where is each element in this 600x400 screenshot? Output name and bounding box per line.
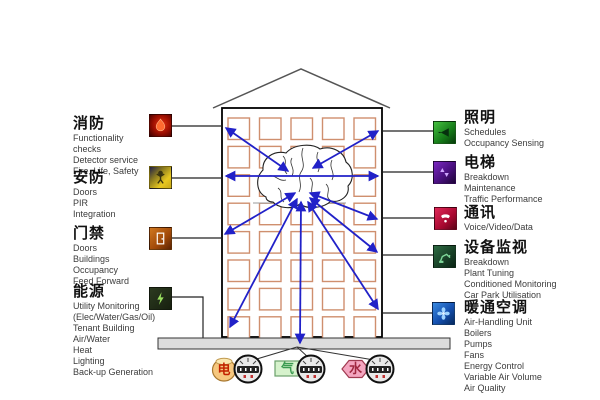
- building-window: [291, 317, 313, 339]
- system-equipment-monitoring-items: Breakdown Plant Tuning Conditioned Monit…: [464, 257, 557, 301]
- system-communication-title: 通讯: [464, 205, 533, 221]
- building-window: [323, 203, 345, 225]
- building-window: [354, 118, 376, 140]
- hvac-fan-icon: [432, 302, 455, 325]
- system-lighting-items: Schedules Occupancy Sensing: [464, 127, 544, 149]
- building-window: [228, 175, 250, 197]
- building-window: [260, 317, 282, 339]
- system-communication-items: Voice/Video/Data: [464, 222, 533, 233]
- building-window: [291, 118, 313, 140]
- system-energy: 能源 Utility Monitoring (Elec/Water/Gas/Oi…: [73, 284, 155, 378]
- energy-meter-icon: [149, 287, 172, 310]
- door-access-icon: [149, 227, 172, 250]
- system-energy-items: Utility Monitoring (Elec/Water/Gas/Oil) …: [73, 301, 155, 378]
- system-lighting: 照明 Schedules Occupancy Sensing: [464, 110, 544, 149]
- equipment-monitoring-icon: [433, 245, 456, 268]
- electricity-gauge-icon: [235, 356, 262, 383]
- building-window: [323, 232, 345, 254]
- water-meter-label: 水: [345, 361, 366, 377]
- building-window: [323, 288, 345, 310]
- building-window: [228, 317, 250, 339]
- building-window: [228, 146, 250, 168]
- system-security-items: Doors PIR Integration: [73, 187, 116, 220]
- communication-icon: [434, 207, 457, 230]
- building-window: [291, 260, 313, 282]
- system-access-title: 门禁: [73, 226, 129, 242]
- building-window: [354, 175, 376, 197]
- building-window: [354, 146, 376, 168]
- system-fire-title: 消防: [73, 116, 139, 132]
- building-window: [260, 118, 282, 140]
- gas-gauge-icon: [298, 356, 325, 383]
- building-window: [228, 260, 250, 282]
- building-window: [260, 288, 282, 310]
- building-window: [323, 260, 345, 282]
- water-gauge-icon: [367, 356, 394, 383]
- lighting-beam-icon: [433, 121, 456, 144]
- security-person-icon: [149, 166, 172, 189]
- system-access: 门禁 Doors Buildings Occupancy Feed Forwar…: [73, 226, 129, 287]
- ground-bar: [158, 338, 450, 349]
- building-window: [323, 118, 345, 140]
- system-communication: 通讯 Voice/Video/Data: [464, 205, 533, 233]
- system-equipment-monitoring: 设备监视 Breakdown Plant Tuning Conditioned …: [464, 240, 557, 301]
- system-hvac: 暖通空调 Air-Handling Unit Boilers Pumps Fan…: [464, 300, 542, 394]
- building-window: [354, 317, 376, 339]
- system-equipment-monitoring-title: 设备监视: [464, 240, 557, 256]
- system-elevator-items: Breakdown Maintenance Traffic Performanc…: [464, 172, 543, 205]
- system-security: 安防 Doors PIR Integration: [73, 170, 116, 220]
- building-window: [291, 232, 313, 254]
- building-window: [228, 288, 250, 310]
- fire-icon: [149, 114, 172, 137]
- building-management-diagram: 消防 Functionality checks Detector service…: [0, 0, 600, 400]
- system-elevator-title: 电梯: [464, 155, 543, 171]
- building-window: [291, 288, 313, 310]
- building-window: [260, 203, 282, 225]
- system-lighting-title: 照明: [464, 110, 544, 126]
- system-hvac-title: 暖通空调: [464, 300, 542, 316]
- system-hvac-items: Air-Handling Unit Boilers Pumps Fans Ene…: [464, 317, 542, 394]
- building-window: [228, 232, 250, 254]
- building-roof: [213, 69, 390, 108]
- gas-meter-label: 气: [277, 361, 298, 377]
- electricity-meter-label: 电: [214, 362, 234, 378]
- system-access-items: Doors Buildings Occupancy Feed Forward: [73, 243, 129, 287]
- elevator-icon: [433, 161, 456, 184]
- system-security-title: 安防: [73, 170, 116, 186]
- building-window: [323, 317, 345, 339]
- system-fire: 消防 Functionality checks Detector service…: [73, 116, 139, 177]
- system-energy-title: 能源: [73, 284, 155, 300]
- system-elevator: 电梯 Breakdown Maintenance Traffic Perform…: [464, 155, 543, 205]
